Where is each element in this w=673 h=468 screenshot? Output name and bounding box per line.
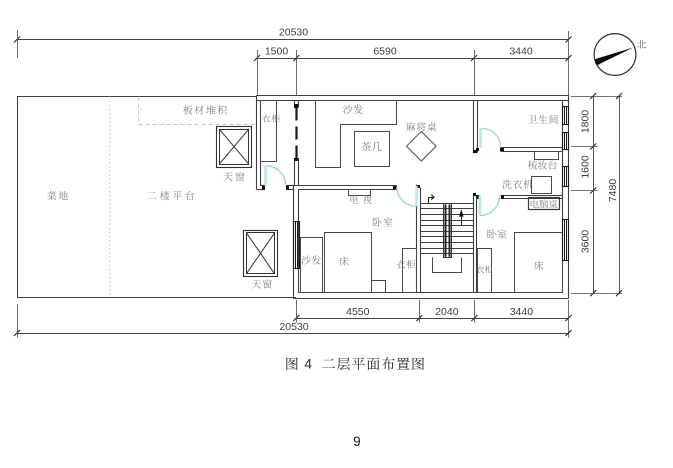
svg-text:3440: 3440	[509, 46, 533, 58]
svg-text:4: 4	[304, 357, 312, 372]
svg-text:3600: 3600	[579, 230, 591, 254]
svg-text:4550: 4550	[346, 306, 370, 318]
svg-text:1500: 1500	[265, 46, 289, 58]
svg-text:1800: 1800	[579, 110, 591, 134]
svg-text:9: 9	[353, 434, 361, 449]
svg-text:3440: 3440	[510, 306, 534, 318]
svg-text:6590: 6590	[373, 46, 397, 58]
svg-text:2040: 2040	[435, 306, 459, 318]
svg-text:1600: 1600	[579, 155, 591, 179]
svg-text:20530: 20530	[279, 321, 308, 333]
svg-text:7480: 7480	[607, 179, 619, 203]
svg-text:20530: 20530	[279, 27, 308, 39]
